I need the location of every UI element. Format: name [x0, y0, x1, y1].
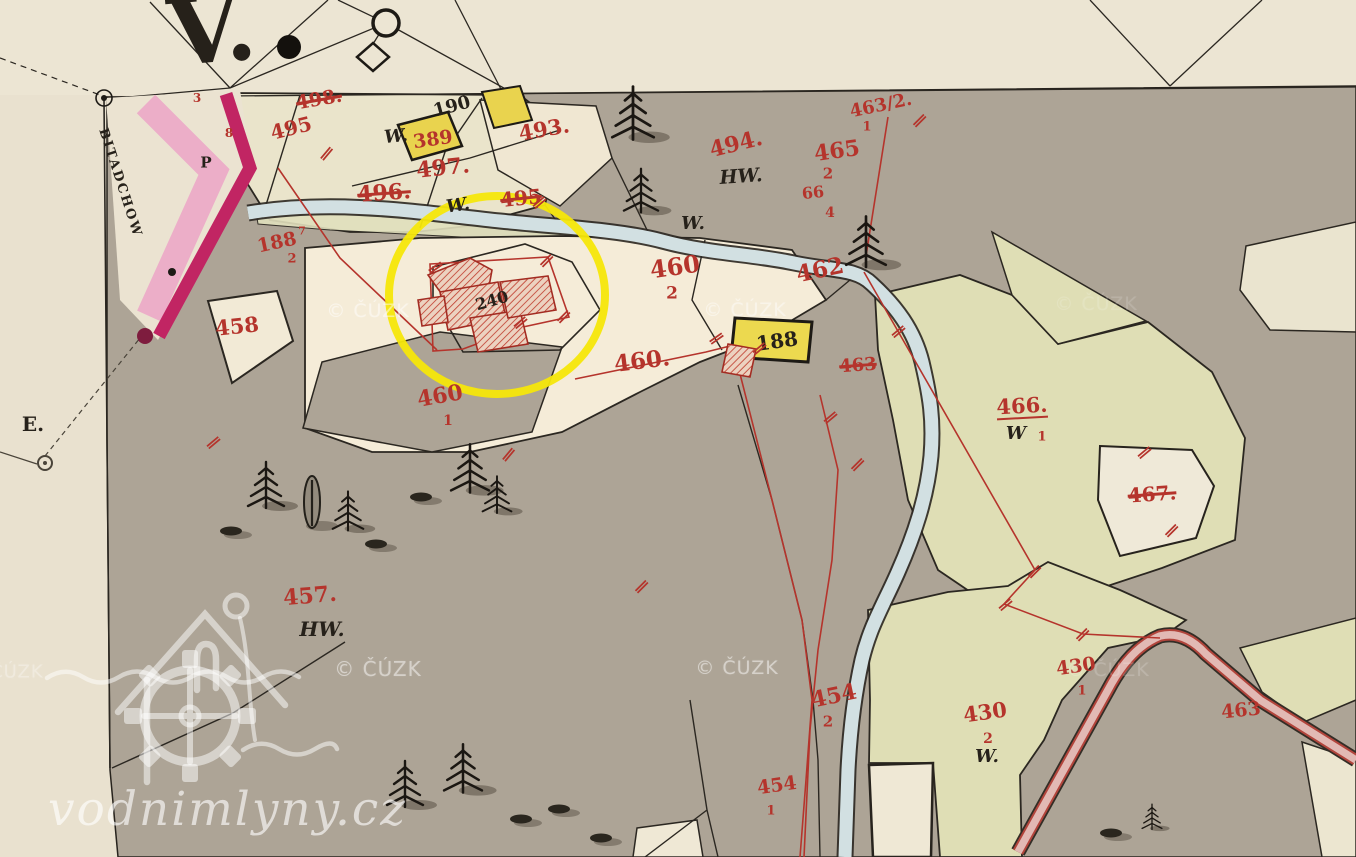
label-parcel-188-2-sub: 2 — [287, 253, 296, 266]
label-parcel-430-1-sub: 1 — [1077, 685, 1086, 698]
label-parcel-463-se: 463 — [1220, 699, 1261, 722]
label-parcel-460-2-sub: 2 — [666, 286, 678, 303]
label-parcel-454-1-sub: 1 — [766, 805, 775, 818]
label-parcel-465-sub: 2 — [823, 167, 833, 182]
label-parcel-66-sub: 4 — [825, 206, 835, 220]
label-parcel-466: 466. — [996, 394, 1048, 421]
map-artwork — [0, 0, 1356, 857]
label-parcel-496: 496. — [357, 180, 412, 206]
survey-circle — [373, 10, 399, 36]
label-parcel-66: 66 — [801, 184, 825, 202]
label-w-southeast: W. — [975, 748, 999, 766]
label-v-mark: V. — [164, 0, 259, 80]
label-parcel-466-w: W — [1006, 425, 1026, 443]
label-parcel-430-2: 430 — [962, 699, 1008, 726]
cuzk-watermark: © ČÚZK — [334, 657, 421, 681]
label-parcel-458: 458 — [214, 313, 260, 338]
label-parcel-430-2-sub: 2 — [983, 732, 993, 746]
cuzk-watermark: © ČÚZK — [703, 299, 786, 321]
cuzk-watermark: © ČÚZK — [0, 662, 44, 683]
label-parcel-466-sub: 1 — [1037, 431, 1046, 444]
label-parcel-463-2-sub: 1 — [862, 121, 871, 134]
survey-dot — [277, 35, 301, 59]
label-hw-south: HW. — [299, 619, 344, 639]
cuzk-watermark: © ČÚZK — [1054, 293, 1137, 315]
label-mark-8: 8 — [225, 127, 233, 139]
label-hw-north: HW. — [719, 166, 763, 188]
label-parcel-463-struck: 463 — [839, 356, 878, 377]
label-parcel-497: 497. — [415, 154, 471, 181]
cuzk-watermark: © ČÚZK — [695, 657, 778, 679]
label-parcel-454-2-sub: 2 — [823, 715, 833, 730]
cuzk-watermark: © ČÚZK — [326, 300, 409, 322]
cadastral-map-canvas: V.BITADCHOWE.P498.49538190W.389493.497.4… — [0, 0, 1356, 857]
label-parcel-467: 467. — [1127, 482, 1177, 505]
label-p-mark: P — [200, 156, 211, 171]
label-w-389: W. — [383, 127, 408, 147]
label-e-mark: E. — [22, 414, 44, 434]
label-parcel-460: 460. — [613, 346, 671, 376]
label-mark-3: 3 — [193, 92, 201, 104]
region-parcel-trapezoid — [869, 763, 933, 857]
road-end-cap — [137, 328, 153, 344]
label-parcel-457: 457. — [282, 583, 337, 610]
label-parcel-188-2-sup: 7 — [298, 226, 306, 237]
label-parcel-389: 389 — [412, 128, 454, 152]
label-w-mid: W. — [681, 215, 705, 233]
site-watermark: vodnimlyny.cz — [48, 782, 407, 837]
label-parcel-465: 465 — [813, 137, 862, 165]
label-parcel-460-1-sub: 1 — [443, 414, 453, 428]
label-parcel-454-1: 454 — [756, 774, 798, 798]
label-parcel-460-2: 460 — [649, 252, 702, 283]
cuzk-watermark: © ČÚZK — [1066, 659, 1149, 681]
label-w-north: W. — [445, 195, 471, 216]
